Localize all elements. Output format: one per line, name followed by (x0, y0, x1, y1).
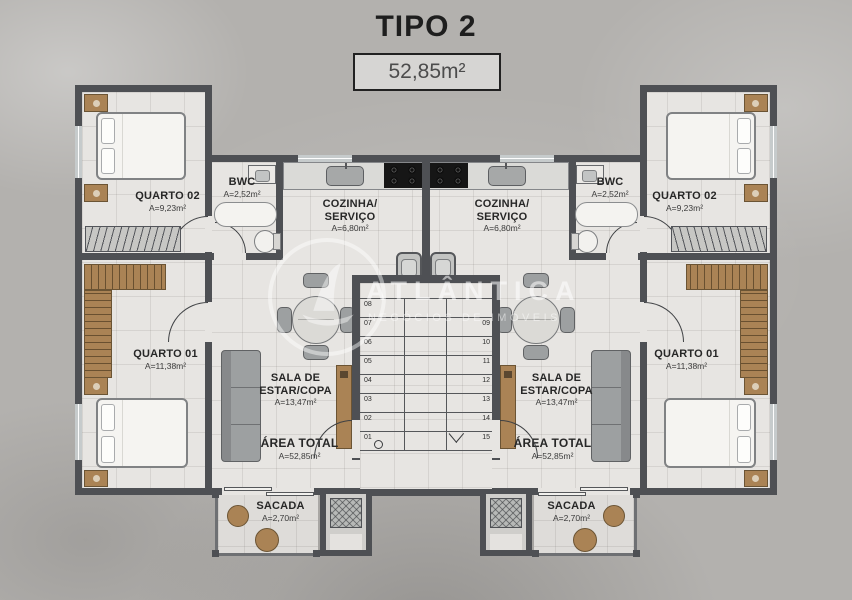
stair-treads (360, 298, 492, 451)
stair-number: 04 (364, 377, 378, 384)
stair-divider (404, 298, 405, 451)
stair-number: 10 (476, 339, 490, 346)
stair-divider (446, 298, 447, 451)
stair-number: 03 (364, 396, 378, 403)
stair-number: 05 (364, 358, 378, 365)
door-opening-entry-left (352, 420, 360, 458)
floor-plan-page: TIPO 2 52,85m² (0, 0, 852, 600)
stair-start-marker (374, 440, 383, 449)
stair-number: 07 (364, 320, 378, 327)
door-arc-entry-right (500, 420, 538, 458)
stair-number: 08 (364, 301, 378, 308)
stair-number: 11 (476, 358, 490, 365)
stair-number: 13 (476, 396, 490, 403)
stairwell-wall-top (352, 275, 500, 283)
stair-number: 14 (476, 415, 490, 422)
door-opening-entry-right (492, 420, 500, 458)
door-arc-entry-left (314, 420, 352, 458)
stair-number: 15 (476, 434, 490, 441)
stair-number: 12 (476, 377, 490, 384)
central-stairwell: 08 07 06 05 04 03 02 01 09 10 11 12 13 1… (0, 0, 852, 600)
stair-number: 02 (364, 415, 378, 422)
party-wall (422, 155, 430, 283)
stair-number: 06 (364, 339, 378, 346)
stair-number: 09 (476, 320, 490, 327)
